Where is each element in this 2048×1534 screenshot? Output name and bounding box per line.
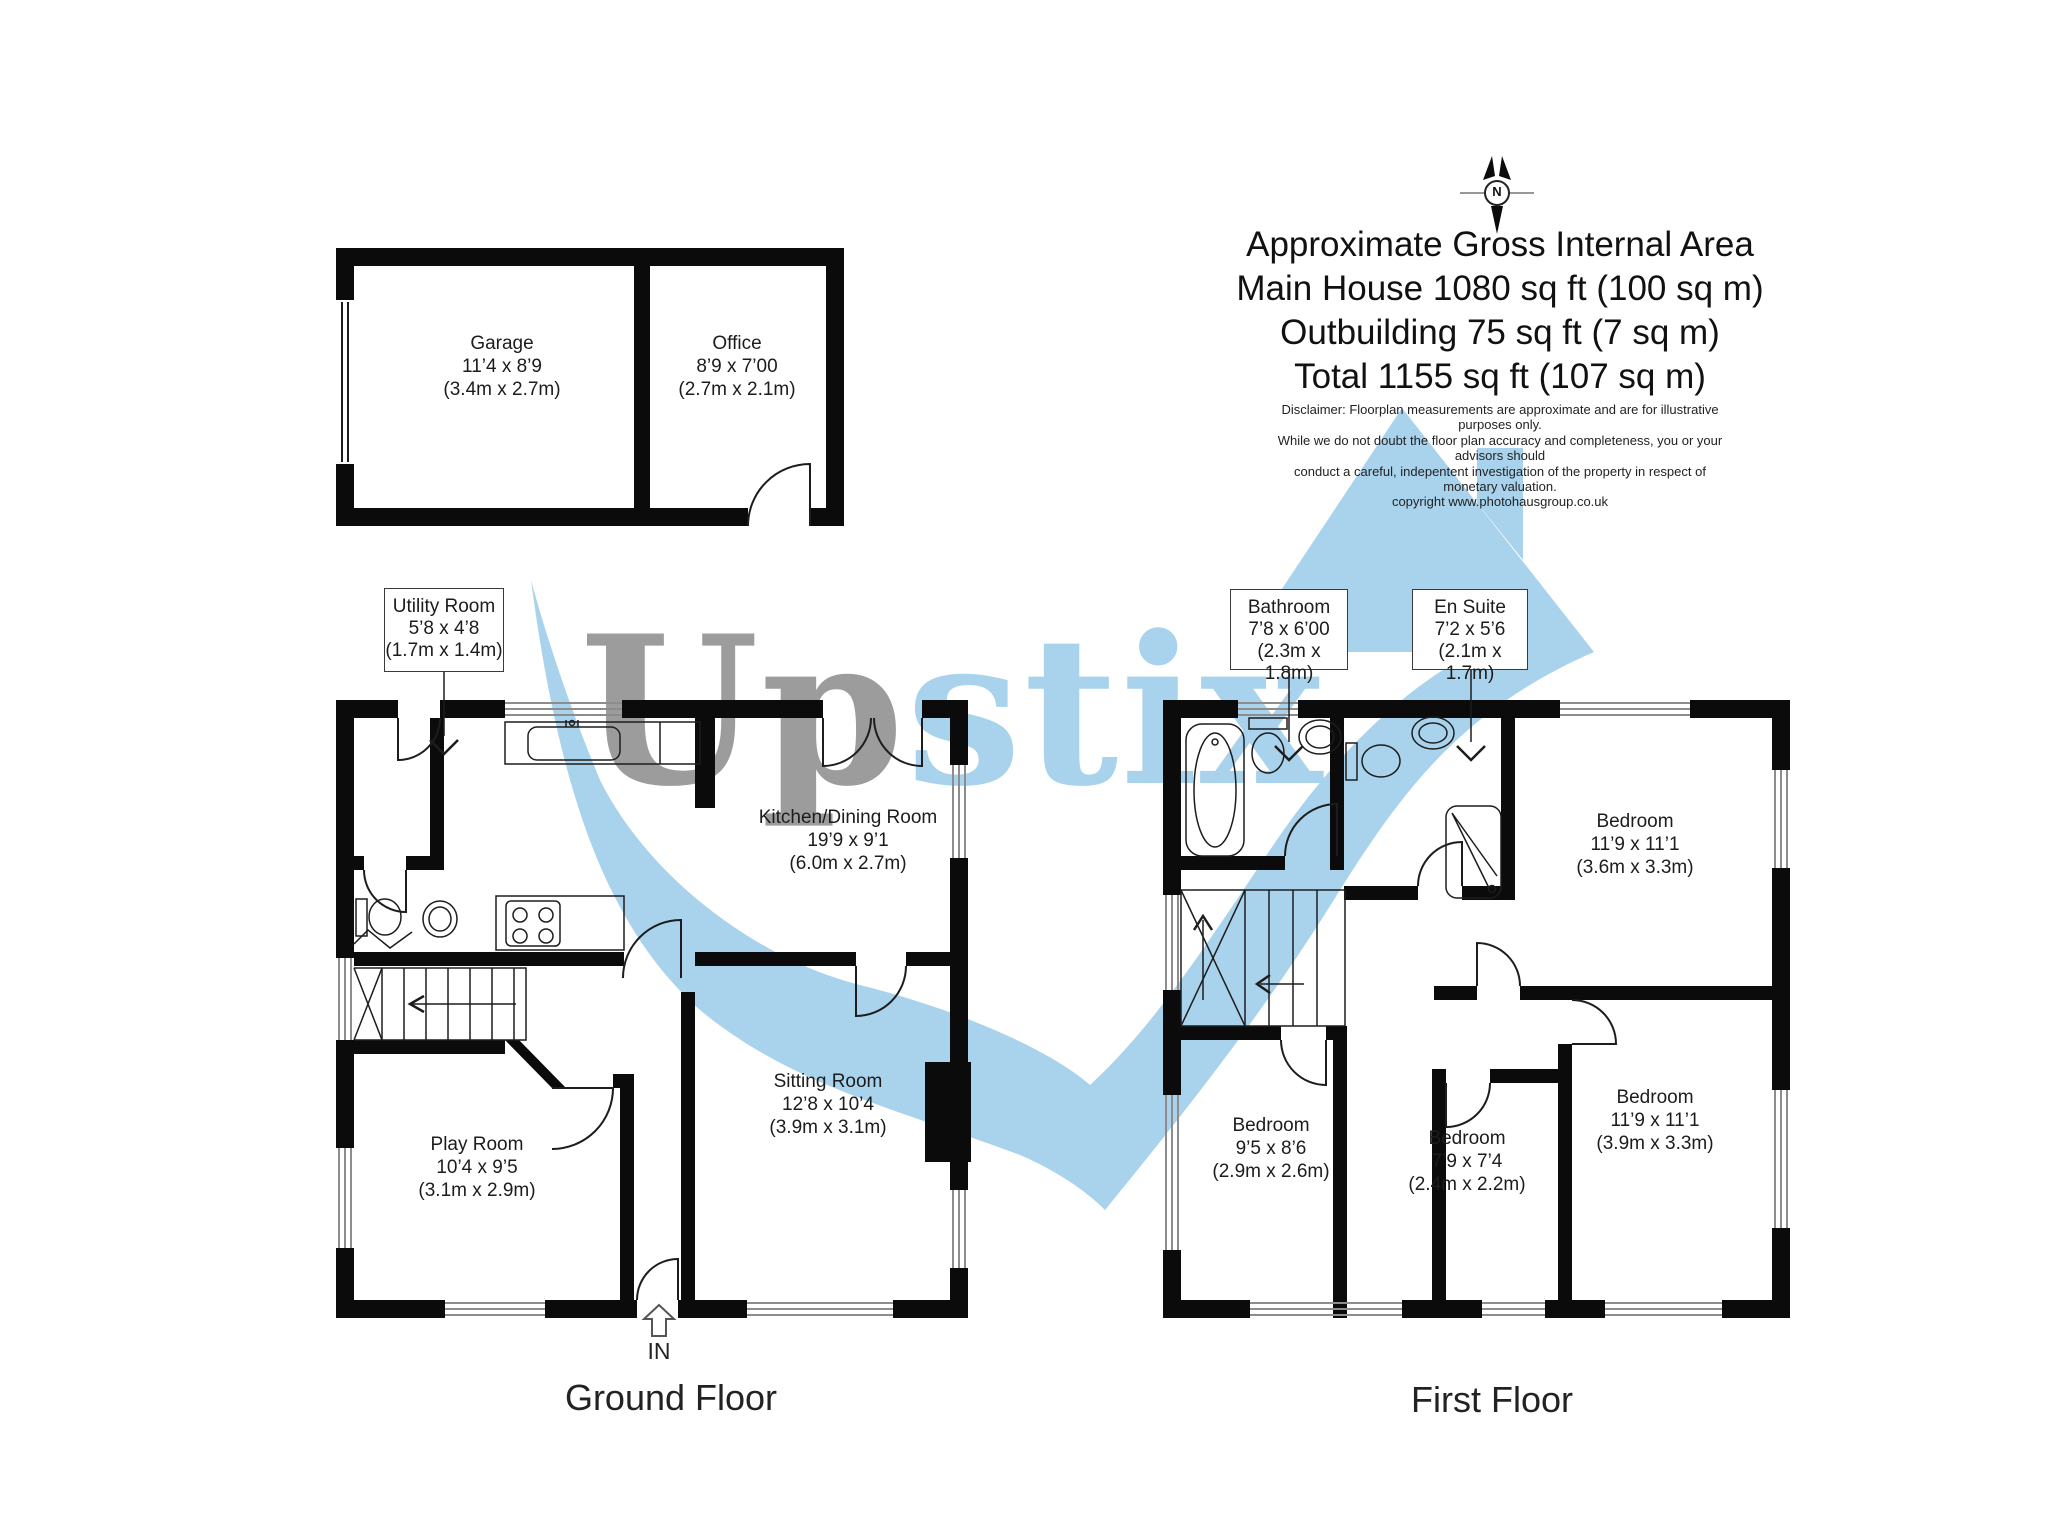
wc-basin-icon [423,901,457,937]
room-label-play: Play Room 10’4 x 9’5 (3.1m x 2.9m) [367,1133,587,1202]
entrance-label: IN [639,1338,679,1365]
floorplan-document: Upstix [0,0,2048,1534]
bedroom4-door-arc-icon [1446,1083,1490,1127]
room-label-bedroom4: Bedroom 7’9 x 7’4 (2.4m x 2.2m) [1357,1127,1577,1196]
disclaimer-line-1: Disclaimer: Floorplan measurements are a… [1270,402,1730,433]
title-line-3: Outbuilding 75 sq ft (7 sq m) [1150,311,1850,355]
garage-door-icon [342,302,348,462]
room-label-bedroom1: Bedroom 11’9 x 11’1 (3.6m x 3.3m) [1525,810,1745,879]
hob-icon [496,896,624,950]
callout-ensuite: En Suite 7’2 x 5’6 (2.1m x 1.7m) [1412,589,1528,670]
callout-utility: Utility Room 5’8 x 4’8 (1.7m x 1.4m) [384,588,504,672]
bedroom3-door-arc-icon [1281,1040,1326,1085]
title-line-2: Main House 1080 sq ft (100 sq m) [1150,267,1850,311]
room-label-office: Office 8’9 x 7’00 (2.7m x 2.1m) [627,332,847,401]
ground-stairs [354,930,526,1040]
north-label: N [1489,184,1505,199]
title-block: Approximate Gross Internal Area Main Hou… [1150,223,1850,399]
disclaimer-line-4: copyright www.photohausgroup.co.uk [1270,494,1730,509]
disclaimer-line-2: While we do not doubt the floor plan acc… [1270,433,1730,464]
office-door-arc-icon [748,464,810,526]
disclaimer-line-3: conduct a careful, indepentent investiga… [1270,464,1730,495]
bedroom1-door-arc-icon [1477,943,1520,986]
wc-door-arc-icon [364,870,406,912]
caption-ground-floor: Ground Floor [521,1377,821,1419]
entrance-arrow-icon [644,1305,674,1336]
shower-icon [1446,806,1501,898]
room-label-garage: Garage 11’4 x 8’9 (3.4m x 2.7m) [392,332,612,401]
ensuite-pointer-icon [1457,746,1485,760]
ensuite-door-arc-icon [1418,842,1462,886]
title-line-1: Approximate Gross Internal Area [1150,223,1850,267]
room-label-bedroom3: Bedroom 9’5 x 8’6 (2.9m x 2.6m) [1161,1114,1381,1183]
room-label-bedroom2: Bedroom 11’9 x 11’1 (3.9m x 3.3m) [1545,1086,1765,1155]
disclaimer-block: Disclaimer: Floorplan measurements are a… [1270,402,1730,510]
room-label-sitting: Sitting Room 12’8 x 10’4 (3.9m x 3.1m) [718,1070,938,1139]
room-label-kitchen: Kitchen/Dining Room 19’9 x 9’1 (6.0m x 2… [738,806,958,875]
wc-toilet-icon [356,899,401,936]
bedroom2-door-arc-icon [1572,1000,1616,1044]
caption-first-floor: First Floor [1342,1379,1642,1421]
front-door-arc-icon [637,1259,678,1300]
title-line-4: Total 1155 sq ft (107 sq m) [1150,355,1850,399]
callout-bathroom: Bathroom 7’8 x 6’00 (2.3m x 1.8m) [1230,589,1348,670]
